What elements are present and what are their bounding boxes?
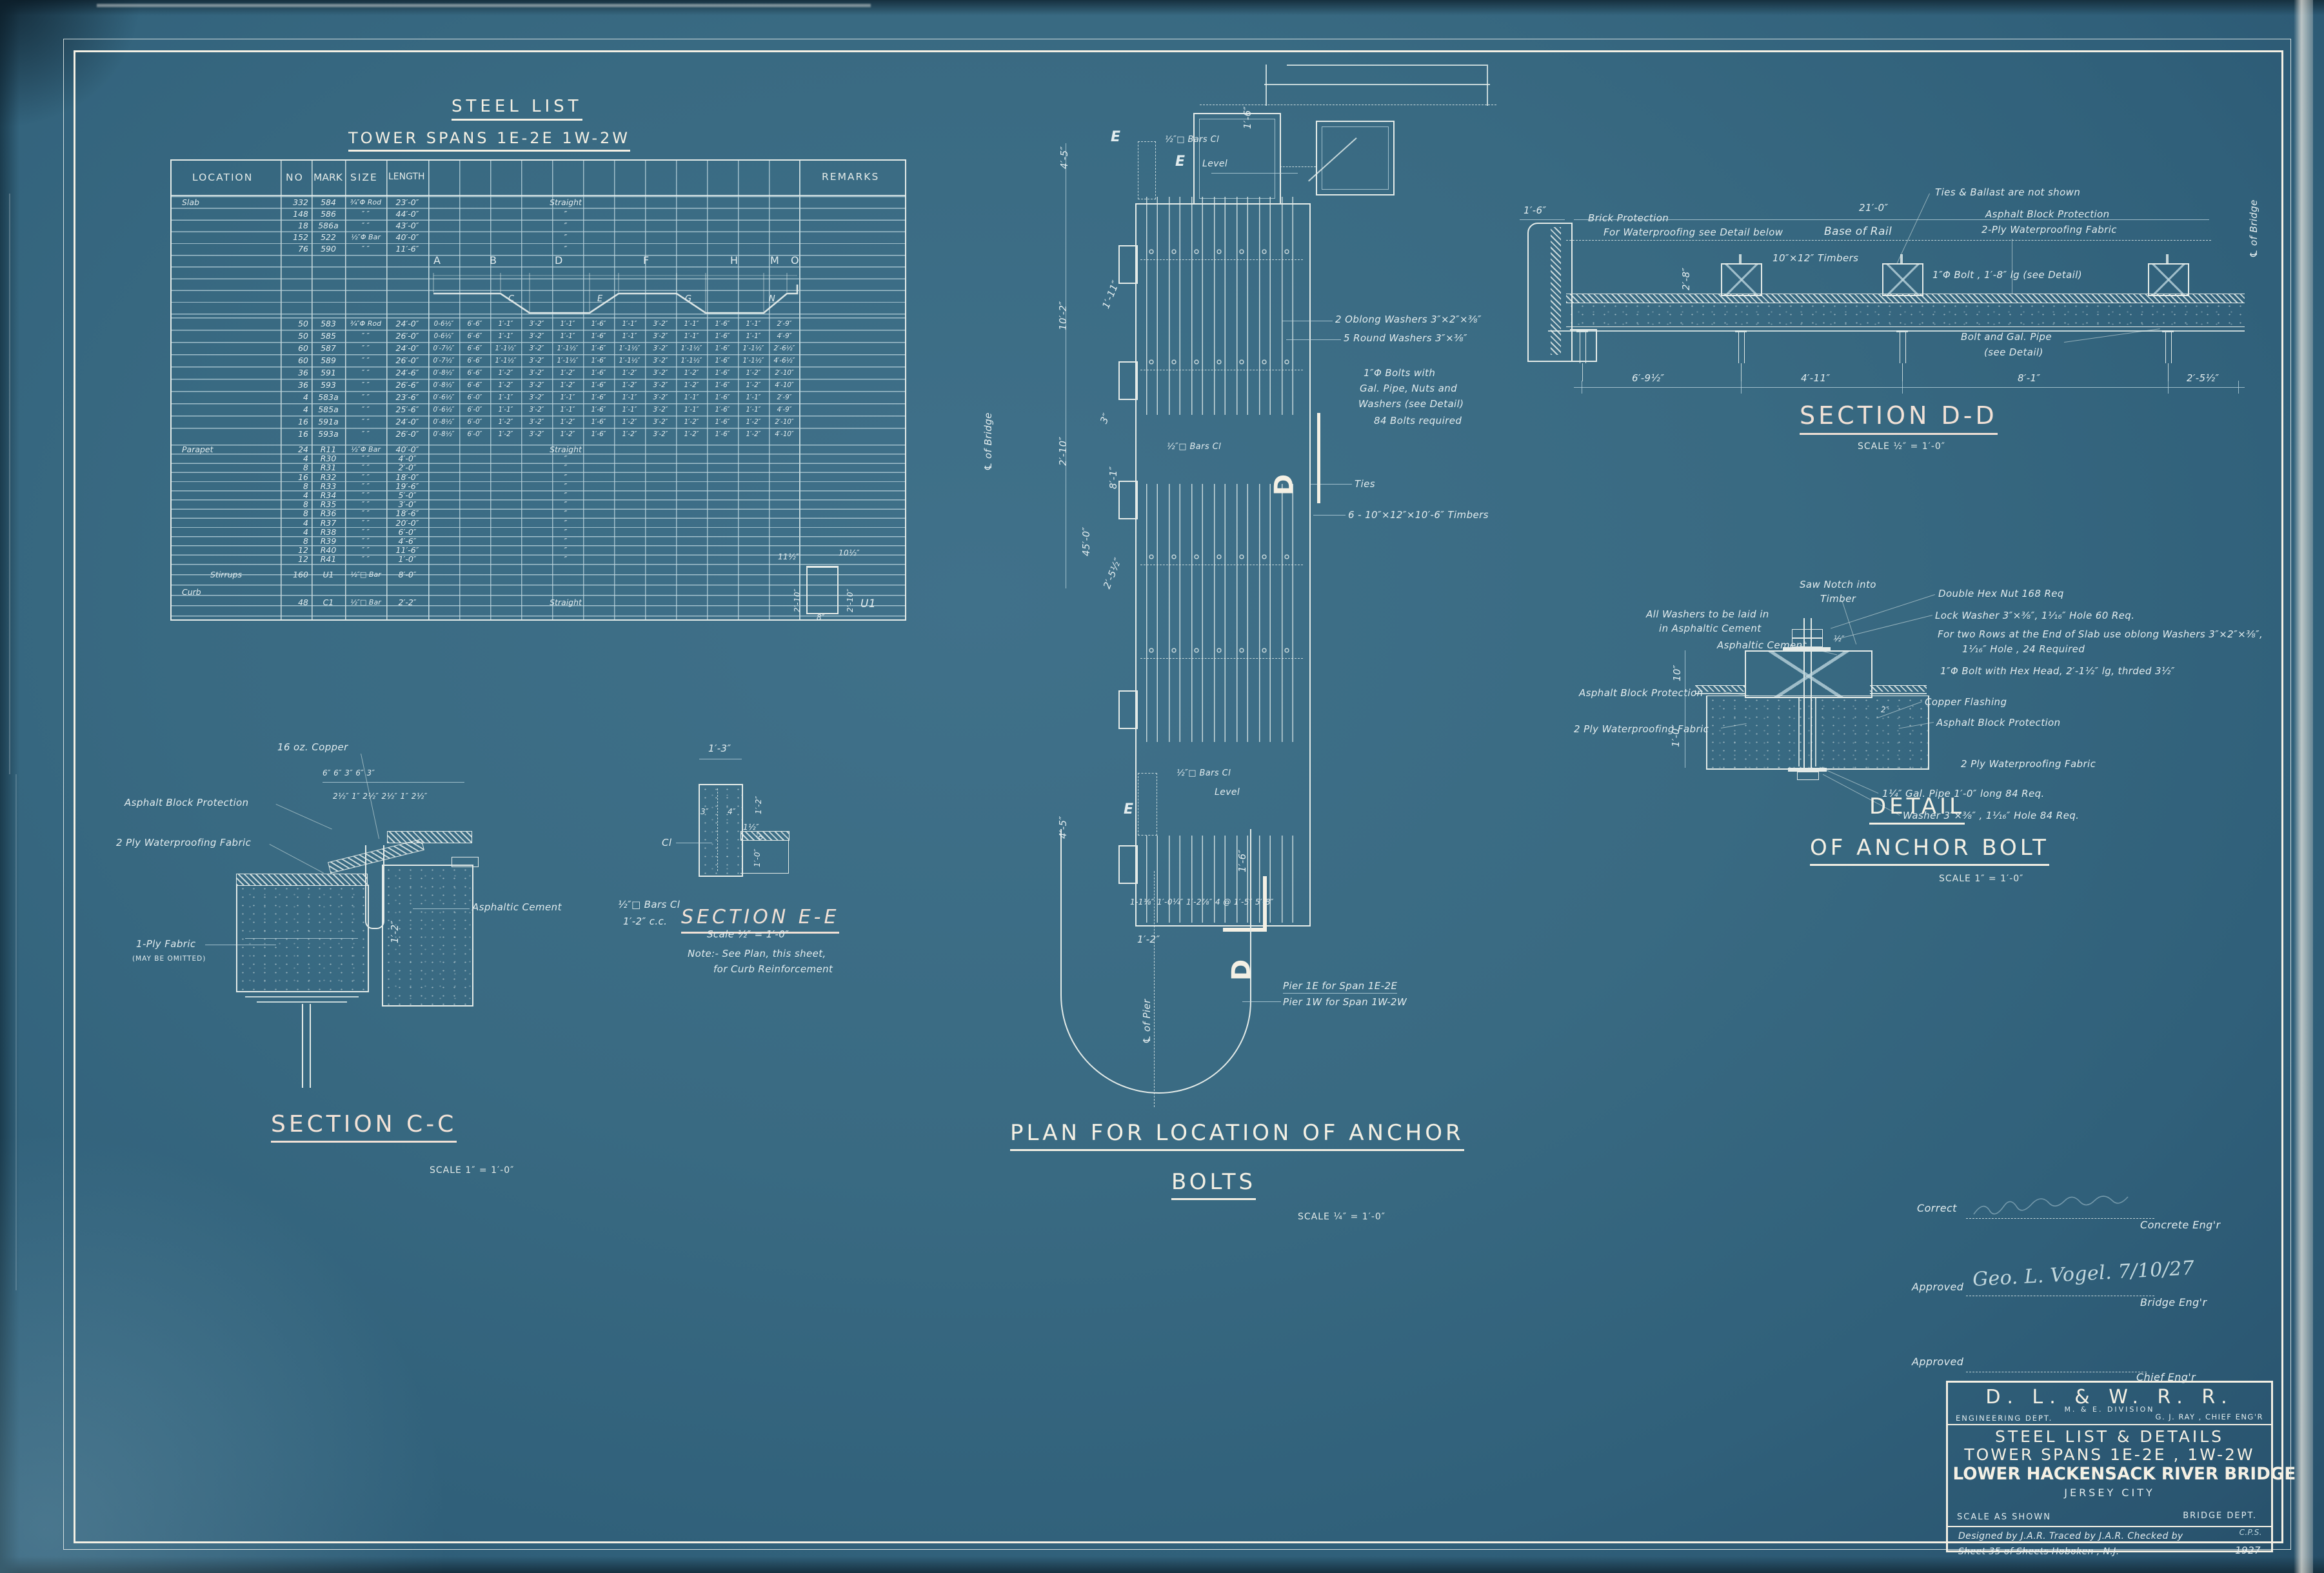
cell-length: 3′-0″ xyxy=(386,499,428,509)
cc-curb-hatch xyxy=(387,831,472,843)
plan-dim-45-0: 45′-0″ xyxy=(1081,527,1092,556)
cell-mark: 522 xyxy=(312,232,345,242)
cell-length: 26′-0″ xyxy=(386,356,428,365)
table-row: Slab 332 584 ¾″Φ Rod 23′-0″ Straight xyxy=(172,196,905,208)
cell-dim-d: 3′-2″ xyxy=(521,345,552,352)
cell-size: ″ ″ xyxy=(345,381,386,389)
diagram-letter-d: D xyxy=(555,255,563,266)
plan-scale: SCALE ¼″ = 1′-0″ xyxy=(1298,1212,1385,1222)
cell-dim-o: 2′-9″ xyxy=(769,394,800,401)
cell-remark: Straight xyxy=(428,197,800,207)
cell-size: ″ ″ xyxy=(345,245,386,253)
table-row: 16 591a ″ ″ 24′-0″ 0′-8½″ 6′-0″ 1′-2″ 3′… xyxy=(172,416,905,428)
ab-washers-note-2: in Asphaltic Cement xyxy=(1659,623,1762,634)
cell-length: 40′-0″ xyxy=(386,445,428,454)
bent-bar-profile xyxy=(428,256,802,317)
cell-dim-a: 0′-7½″ xyxy=(428,345,459,352)
table-row: 76 590 ″ ″ 11′-6″ ″ xyxy=(172,243,905,255)
cell-size: ″ ″ xyxy=(345,221,386,230)
cc-asphalt-note: Asphalt Block Protection xyxy=(124,797,249,808)
cell-dim-c: 1′-1″ xyxy=(490,394,521,401)
plan-timbers-group2 xyxy=(1146,484,1301,742)
approved-label-1: Approved xyxy=(1912,1281,1963,1293)
cell-dim-n: 1′-2″ xyxy=(738,369,769,377)
plan-bolts-note-3: Washers (see Detail) xyxy=(1358,399,1464,410)
ab-copper-note: Copper Flashing xyxy=(1925,697,2007,708)
cell-dim-n: 1′-1″ xyxy=(738,394,769,401)
plan-timbers-leader xyxy=(1313,515,1346,516)
cell-mark: R31 xyxy=(312,463,345,472)
cell-no: 4 xyxy=(281,518,312,528)
ee-scale: Scale ½″ = 1′-0″ xyxy=(707,929,789,940)
cell-dim-e: 1′-1″ xyxy=(552,320,583,328)
cell-no: 24 xyxy=(281,445,312,454)
cell-dim-b: 6′-6″ xyxy=(459,369,490,377)
plan-timbers-group1 xyxy=(1146,197,1301,415)
cell-size: ″ ″ xyxy=(345,482,386,490)
ab-oblong-note-2: 1¹⁄₁₆″ Hole , 24 Required xyxy=(1962,644,2085,655)
bridge-dept-note: BRIDGE DEPT. xyxy=(2183,1512,2257,1521)
cell-dim-h: 3′-2″ xyxy=(645,332,676,340)
cell-remark: ″ xyxy=(428,209,800,219)
cell-no: 18 xyxy=(281,221,312,230)
dd-hanger-pipe xyxy=(2165,332,2172,363)
cell-dim-g: 1′-2″ xyxy=(614,430,645,438)
cell-dim-h: 3′-2″ xyxy=(645,345,676,352)
plan-dim-4-5-bottom: 4′-5″ xyxy=(1058,816,1069,839)
cell-remark: ″ xyxy=(428,481,800,491)
cell-dim-d: 3′-2″ xyxy=(521,430,552,438)
cell-dim-m: 1′-6″ xyxy=(707,332,738,340)
dd-dim-6-9: 6′-9½″ xyxy=(1632,373,1664,384)
cell-dim-c: 1′-1″ xyxy=(490,320,521,328)
cell-dim-e: 1′-2″ xyxy=(552,418,583,426)
col-header-mark: MARK xyxy=(313,172,343,183)
cell-no: 36 xyxy=(281,368,312,377)
cell-size: ½″□ Bar xyxy=(345,598,386,606)
correct-signature xyxy=(1971,1195,2151,1221)
ab-dim-10: 10″ xyxy=(1672,665,1683,681)
cell-dim-a: 0′-8½″ xyxy=(428,381,459,389)
table-row: 36 591 ″ ″ 24′-6″ 0′-8½″ 6′-6″ 1′-2″ 3′-… xyxy=(172,366,905,379)
plan-dim-chain xyxy=(1066,143,1066,588)
parapet-rows: Parapet 24 R11 ½″Φ Bar 40′-0″ Straight 4… xyxy=(172,445,905,563)
cell-remark: ″ xyxy=(428,527,800,537)
cell-dim-c: 1′-1″ xyxy=(490,406,521,414)
cell-dim-n: 1′-1½″ xyxy=(738,345,769,352)
cell-dim-f: 1′-6″ xyxy=(583,357,614,365)
plan-pier-outline xyxy=(1060,829,1251,1094)
cell-no: 4 xyxy=(281,392,312,402)
cell-size: ″ ″ xyxy=(345,491,386,499)
cell-no: 16 xyxy=(281,429,312,439)
cell-length: 24′-0″ xyxy=(386,417,428,426)
cell-no: 8 xyxy=(281,536,312,546)
cell-dim-g: 1′-2″ xyxy=(614,369,645,377)
cell-dim-g: 1′-1″ xyxy=(614,406,645,414)
plan-bars-note-g2: ½″□ Bars Cl xyxy=(1167,443,1221,452)
ee-note-1: Note:- See Plan, this sheet, xyxy=(688,948,826,959)
cell-size: ″ ″ xyxy=(345,417,386,426)
photo-edge-top xyxy=(0,0,2324,15)
cell-size: ″ ″ xyxy=(345,528,386,536)
cell-dim-m: 1′-6″ xyxy=(707,406,738,414)
cell-dim-f: 1′-6″ xyxy=(583,345,614,352)
ab-title-2: OF ANCHOR BOLT xyxy=(1810,835,2049,866)
cell-remark: ″ xyxy=(428,554,800,564)
cell-dim-h: 3′-2″ xyxy=(645,381,676,389)
plan-edge-tab xyxy=(1118,361,1138,400)
cell-size: ″ ″ xyxy=(345,332,386,340)
plan-cl-bridge: ℄ of Bridge xyxy=(983,412,994,471)
ab-fabric-right: 2 Ply Waterproofing Fabric xyxy=(1961,759,2096,770)
plan-pier-note-1: Pier 1E for Span 1E-2E xyxy=(1283,981,1397,994)
cell-mark: U1 xyxy=(312,570,345,579)
table-row: 152 522 ½″Φ Bar 40′-0″ ″ xyxy=(172,232,905,243)
cell-no: 50 xyxy=(281,331,312,341)
photo-edge-bottom xyxy=(0,1556,2324,1573)
checker-initials: C.P.S. xyxy=(2240,1528,2262,1538)
sheet-title-line4: JERSEY CITY xyxy=(1948,1487,2271,1499)
stirrup-mark: U1 xyxy=(860,598,876,611)
col-header-no: NO xyxy=(286,172,304,183)
cell-dim-g: 1′-2″ xyxy=(614,418,645,426)
plan-pier-leader xyxy=(1242,1001,1281,1002)
plan-top-line xyxy=(1264,84,1490,85)
cell-dim-i: 1′-1″ xyxy=(676,320,707,328)
ab-dim-half: ½″ xyxy=(1834,635,1845,644)
cell-dim-i: 1′-2″ xyxy=(676,430,707,438)
cell-dim-b: 6′-0″ xyxy=(459,394,490,401)
table-row: Parapet 24 R11 ½″Φ Bar 40′-0″ Straight xyxy=(172,445,905,454)
ab-asphalt-strip-left xyxy=(1695,685,1745,692)
cell-dim-b: 6′-6″ xyxy=(459,345,490,352)
table-row: 4 R30 ″ ″ 4′-0″ ″ xyxy=(172,454,905,463)
cell-dim-m: 1′-6″ xyxy=(707,357,738,365)
plan-cl-pier: ℄ of Pier xyxy=(1142,999,1153,1044)
diagram-letter-c: C xyxy=(508,295,514,305)
dd-dim-2-8: 2′-8″ xyxy=(1681,267,1692,290)
title-block: D. L. & W. R. R. M. & E. DIVISION ENGINE… xyxy=(1946,1381,2273,1552)
ee-dim-1-3: 1′-3″ xyxy=(708,743,731,754)
ab-fabric-line-left xyxy=(1695,693,1745,694)
plan-bolt-row xyxy=(1148,359,1300,365)
cell-size: ″ ″ xyxy=(345,509,386,517)
dd-asphalt-note: Asphalt Block Protection xyxy=(1985,209,2110,220)
year-label: 1927 xyxy=(2235,1545,2261,1556)
dd-timber-2 xyxy=(1882,263,1923,296)
cell-dim-c: 1′-2″ xyxy=(490,430,521,438)
table-row: 8 R33 ″ ″ 19′-6″ ″ xyxy=(172,481,905,490)
cell-length: 20′-0″ xyxy=(386,518,428,528)
cell-dim-n: 1′-1″ xyxy=(738,320,769,328)
cell-dim-e: 1′-1″ xyxy=(552,406,583,414)
cell-dim-a: 0′-8½″ xyxy=(428,430,459,438)
cell-mark: 587 xyxy=(312,343,345,353)
cell-dim-e: 1′-2″ xyxy=(552,430,583,438)
table-row: 4 R38 ″ ″ 6′-0″ ″ xyxy=(172,527,905,536)
plan-bolt-dash xyxy=(1140,259,1303,260)
dd-hanger-rod xyxy=(1902,363,1903,381)
cell-length: 19′-6″ xyxy=(386,481,428,491)
cell-length: 5′-0″ xyxy=(386,490,428,500)
dd-curb-hatch xyxy=(1551,227,1561,355)
plan-bolt-dash xyxy=(1140,565,1303,565)
dd-scale: SCALE ½″ = 1′-0″ xyxy=(1858,441,1945,452)
ab-asphalt-right: Asphalt Block Protection xyxy=(1936,717,2061,728)
cell-length: 26′-0″ xyxy=(386,331,428,341)
cell-no: 60 xyxy=(281,356,312,365)
cc-dim-line xyxy=(323,782,464,783)
bent-rows: 50 583 ¾″Φ Rod 24′-0″ 0-6½″ 6′-6″ 1′-1″ … xyxy=(172,317,905,440)
stirrup-rows: Stirrups 160 U1 ½″□ Bar 8′-0″ xyxy=(172,568,905,580)
ab-pipe-sleeve-l xyxy=(1798,697,1800,766)
ab-title-1: DETAIL xyxy=(1869,794,1965,825)
cell-size: ″ ″ xyxy=(345,555,386,563)
plan-d-cutline-mid xyxy=(1317,413,1320,503)
table-row: 4 R34 ″ ″ 5′-0″ ″ xyxy=(172,490,905,499)
dd-dim-2-5: 2′-5½″ xyxy=(2187,373,2219,384)
cell-length: 1′-0″ xyxy=(386,554,428,564)
dd-timber-bolt xyxy=(1900,254,1903,265)
plan-bars-note-top: ½″□ Bars Cl xyxy=(1165,135,1219,145)
cell-length: 8′-0″ xyxy=(386,570,428,579)
credits-line: Designed by J.A.R. Traced by J.A.R. Chec… xyxy=(1958,1531,2183,1541)
approved-line-1 xyxy=(1966,1296,2154,1296)
cell-length: 23′-0″ xyxy=(386,197,428,207)
cc-dim-1-2: 1′-2″ xyxy=(390,920,401,943)
plan-washer-leader xyxy=(1282,321,1333,321)
steel-list-subtitle: TOWER SPANS 1E-2E 1W-2W xyxy=(348,129,630,152)
stirrup-dim-left: 2′-10″ xyxy=(793,588,802,612)
cell-size: ″ ″ xyxy=(345,463,386,472)
cell-no: 148 xyxy=(281,209,312,219)
cell-remark: ″ xyxy=(428,454,800,463)
plan-dim-8-1: 8′-1″ xyxy=(1108,466,1119,489)
dd-hanger-3 xyxy=(1896,330,1908,382)
cc-bars-note-1: ½″□ Bars Cl xyxy=(618,899,680,910)
plan-level-note-top: Level xyxy=(1202,159,1227,169)
cell-no: 8 xyxy=(281,481,312,491)
cell-mark: 586 xyxy=(312,209,345,219)
diagram-letter-a: A xyxy=(433,255,441,266)
cell-length: 11′-6″ xyxy=(386,244,428,254)
cell-dim-b: 6′-0″ xyxy=(459,406,490,414)
diagram-letter-n: N xyxy=(769,295,775,305)
plan-edge-tab xyxy=(1118,690,1138,729)
plan-washers-round: 5 Round Washers 3″×⅜″ xyxy=(1344,333,1467,344)
stirrup-diagram: 11½″ 10½″ 2′-10″ 2′-10″ 8″ U1 xyxy=(802,553,803,554)
plan-bolts-note-2: Gal. Pipe, Nuts and xyxy=(1360,383,1457,394)
ab-concrete-block xyxy=(1706,696,1929,770)
dd-dim-line-top xyxy=(1520,219,1565,220)
bridge-engr-label: Bridge Eng'r xyxy=(2140,1297,2207,1308)
cell-dim-o: 4′-9″ xyxy=(769,406,800,414)
ab-pipe-sleeve-r xyxy=(1815,697,1816,766)
dd-fabric-note: 2-Ply Waterproofing Fabric xyxy=(1981,225,2117,235)
dd-dim-8-1: 8′-1″ xyxy=(2018,373,2041,384)
plan-ties-label: Ties xyxy=(1355,479,1375,490)
table-row: 50 585 ″ ″ 26′-0″ 0-6½″ 6′-6″ 1′-1″ 3′-2… xyxy=(172,330,905,342)
cell-length: 4′-0″ xyxy=(386,454,428,463)
approved-label-2: Approved xyxy=(1912,1356,1963,1368)
cell-dim-m: 1′-6″ xyxy=(707,418,738,426)
cell-dim-f: 1′-6″ xyxy=(583,394,614,401)
cell-dim-i: 1′-1″ xyxy=(676,406,707,414)
cell-size: ½″Φ Bar xyxy=(345,233,386,241)
plan-curb-block-right xyxy=(1316,121,1395,195)
cc-dims-fr: 2½″ 1″ 2½″ 2½″ 1″ 2½″ xyxy=(333,792,428,801)
ab-scale: SCALE 1″ = 1′-0″ xyxy=(1939,874,2023,884)
cell-dim-g: 1′-1½″ xyxy=(614,357,645,365)
cc-slab-step-1 xyxy=(245,996,359,997)
stirrup-dim-bottom: 8″ xyxy=(817,614,825,623)
cell-dim-d: 3′-2″ xyxy=(521,381,552,389)
plan-top-line xyxy=(1287,65,1487,66)
table-row: 4 585a ″ ″ 25′-6″ 0′-6½″ 6′-0″ 1′-1″ 3′-… xyxy=(172,403,905,416)
cell-dim-a: 0-6½″ xyxy=(428,320,459,328)
title-block-divider-2 xyxy=(1948,1526,2271,1527)
cc-stem xyxy=(302,1004,311,1088)
cc-rebar-line xyxy=(245,938,358,939)
cell-dim-i: 1′-1″ xyxy=(676,332,707,340)
cell-size: ″ ″ xyxy=(345,537,386,545)
cc-copper-note: 16 oz. Copper xyxy=(277,742,348,753)
cell-dim-h: 3′-2″ xyxy=(645,418,676,426)
cell-dim-a: 0′-7½″ xyxy=(428,357,459,365)
plan-e-marker: E xyxy=(1111,129,1120,145)
cell-dim-m: 1′-6″ xyxy=(707,320,738,328)
ee-note-2: for Curb Reinforcement xyxy=(713,964,833,975)
cell-dim-e: 1′-1½″ xyxy=(552,345,583,352)
dd-hanger-rod xyxy=(1741,363,1742,381)
photo-scratch-2 xyxy=(15,774,17,1290)
plan-dim-4-5: 4′-5″ xyxy=(1059,146,1070,169)
cell-mark: R36 xyxy=(312,508,345,518)
cell-dim-o: 2′-9″ xyxy=(769,320,800,328)
dd-hanger-pipe xyxy=(1900,332,1906,363)
concrete-engr-label: Concrete Eng'r xyxy=(2140,1219,2221,1231)
plan-bolts-note-1: 1″Φ Bolts with xyxy=(1364,368,1435,379)
cell-dim-b: 6′-6″ xyxy=(459,332,490,340)
ab-asphalt-strip-right xyxy=(1870,685,1927,692)
cell-dim-e: 1′-1″ xyxy=(552,332,583,340)
photo-edge-right-strip xyxy=(2294,0,2313,1573)
chief-engineer-name: G. J. RAY , CHIEF ENG'R xyxy=(2156,1413,2263,1421)
table-row: 36 593 ″ ″ 26′-6″ 0′-8½″ 6′-6″ 1′-2″ 3′-… xyxy=(172,379,905,391)
table-row: 4 583a ″ ″ 23′-6″ 0′-6½″ 6′-0″ 1′-1″ 3′-… xyxy=(172,391,905,403)
cell-no: 36 xyxy=(281,380,312,390)
plan-washer-leader xyxy=(1286,339,1341,340)
dd-base-rail-line xyxy=(1566,240,2211,241)
photo-scratch-1 xyxy=(9,194,10,774)
col-header-remarks: REMARKS xyxy=(822,171,879,183)
cell-dim-i: 1′-1″ xyxy=(676,394,707,401)
dd-dim-tick xyxy=(1902,381,1903,394)
cell-dim-c: 1′-1½″ xyxy=(490,345,521,352)
cell-dim-h: 3′-2″ xyxy=(645,320,676,328)
cell-dim-e: 1′-1″ xyxy=(552,394,583,401)
cell-dim-f: 1′-6″ xyxy=(583,406,614,414)
cell-mark: 583a xyxy=(312,392,345,402)
dd-brick-note-2: For Waterproofing see Detail below xyxy=(1604,227,1783,238)
plan-e-marker: E xyxy=(1175,154,1185,170)
plan-e-box-mid xyxy=(1138,773,1157,836)
cell-dim-c: 1′-2″ xyxy=(490,418,521,426)
cell-dim-e: 1′-2″ xyxy=(552,369,583,377)
cell-dim-n: 1′-1″ xyxy=(738,332,769,340)
cell-dim-c: 1′-2″ xyxy=(490,369,521,377)
table-row: 8 R35 ″ ″ 3′-0″ ″ xyxy=(172,499,905,508)
dd-dim-tick xyxy=(1582,381,1582,394)
cell-dim-f: 1′-6″ xyxy=(583,369,614,377)
cell-dim-h: 3′-2″ xyxy=(645,430,676,438)
cell-length: 25′-6″ xyxy=(386,405,428,414)
table-row: 148 586 ″ ″ 44′-0″ ″ xyxy=(172,208,905,219)
plan-bolt-row xyxy=(1148,248,1300,255)
plan-level-note-mid: Level xyxy=(1215,787,1240,797)
plan-pier-note-2: Pier 1W for Span 1W-2W xyxy=(1283,997,1407,1008)
cell-dim-g: 1′-1″ xyxy=(614,394,645,401)
cell-size: ″ ″ xyxy=(345,393,386,401)
plan-bolt-row xyxy=(1148,647,1300,654)
cell-remark: ″ xyxy=(428,499,800,509)
bent-bar-diagram: A B D F H M O C E G N xyxy=(428,256,802,317)
signature-block: Correct Concrete Eng'r Approved Geo. L. … xyxy=(0,0,1,1)
cell-size: ¾″Φ Rod xyxy=(345,198,386,206)
cell-length: 43′-0″ xyxy=(386,221,428,230)
cell-length: 23′-6″ xyxy=(386,392,428,402)
cell-mark: 591 xyxy=(312,368,345,377)
cell-size: ″ ″ xyxy=(345,519,386,527)
diagram-letter-h: H xyxy=(730,255,738,266)
cell-size: ″ ″ xyxy=(345,454,386,463)
correct-label: Correct xyxy=(1917,1203,1957,1214)
plan-edge-tab xyxy=(1118,481,1138,519)
cell-mark: 585a xyxy=(312,405,345,414)
cell-dim-c: 1′-1″ xyxy=(490,332,521,340)
cell-dim-g: 1′-1″ xyxy=(614,320,645,328)
diagram-letter-g: G xyxy=(685,295,691,305)
cell-no: 4 xyxy=(281,527,312,537)
ee-dim-3: 3″ xyxy=(700,808,709,817)
col-header-size: SIZE xyxy=(350,172,378,183)
plan-level-leader xyxy=(1211,173,1298,174)
cc-title: SECTION C-C xyxy=(271,1111,457,1143)
plan-dim-10-2: 10′-2″ xyxy=(1058,301,1069,330)
cell-length: 26′-6″ xyxy=(386,380,428,390)
plan-washers-oblong: 2 Oblong Washers 3″×2″×⅜″ xyxy=(1335,314,1482,325)
cell-mark: R35 xyxy=(312,499,345,509)
cell-dim-g: 1′-2″ xyxy=(614,381,645,389)
table-row: Stirrups 160 U1 ½″□ Bar 8′-0″ xyxy=(172,568,905,580)
table-row: 50 583 ¾″Φ Rod 24′-0″ 0-6½″ 6′-6″ 1′-1″ … xyxy=(172,317,905,330)
plan-e-marker-mid: E xyxy=(1124,801,1133,817)
cell-length: 26′-0″ xyxy=(386,429,428,439)
cell-dim-g: 1′-1½″ xyxy=(614,345,645,352)
cell-remark: ″ xyxy=(428,490,800,500)
plan-title-line2: BOLTS xyxy=(1171,1169,1256,1200)
cell-dim-b: 6′-6″ xyxy=(459,320,490,328)
cell-size: ½″□ Bar xyxy=(345,570,386,579)
dd-ties-note: Ties & Ballast are not shown xyxy=(1935,187,2080,198)
ab-lock-note: Lock Washer 3″×⅜″, 1¹⁄₁₆″ Hole 60 Req. xyxy=(1935,610,2134,621)
cell-dim-c: 1′-1½″ xyxy=(490,357,521,365)
dd-title: SECTION D-D xyxy=(1800,401,1998,435)
stirrup-dim-topright: 10½″ xyxy=(839,549,860,558)
plan-title-line1: PLAN FOR LOCATION OF ANCHOR xyxy=(1010,1120,1464,1151)
cell-mark: R41 xyxy=(312,554,345,564)
